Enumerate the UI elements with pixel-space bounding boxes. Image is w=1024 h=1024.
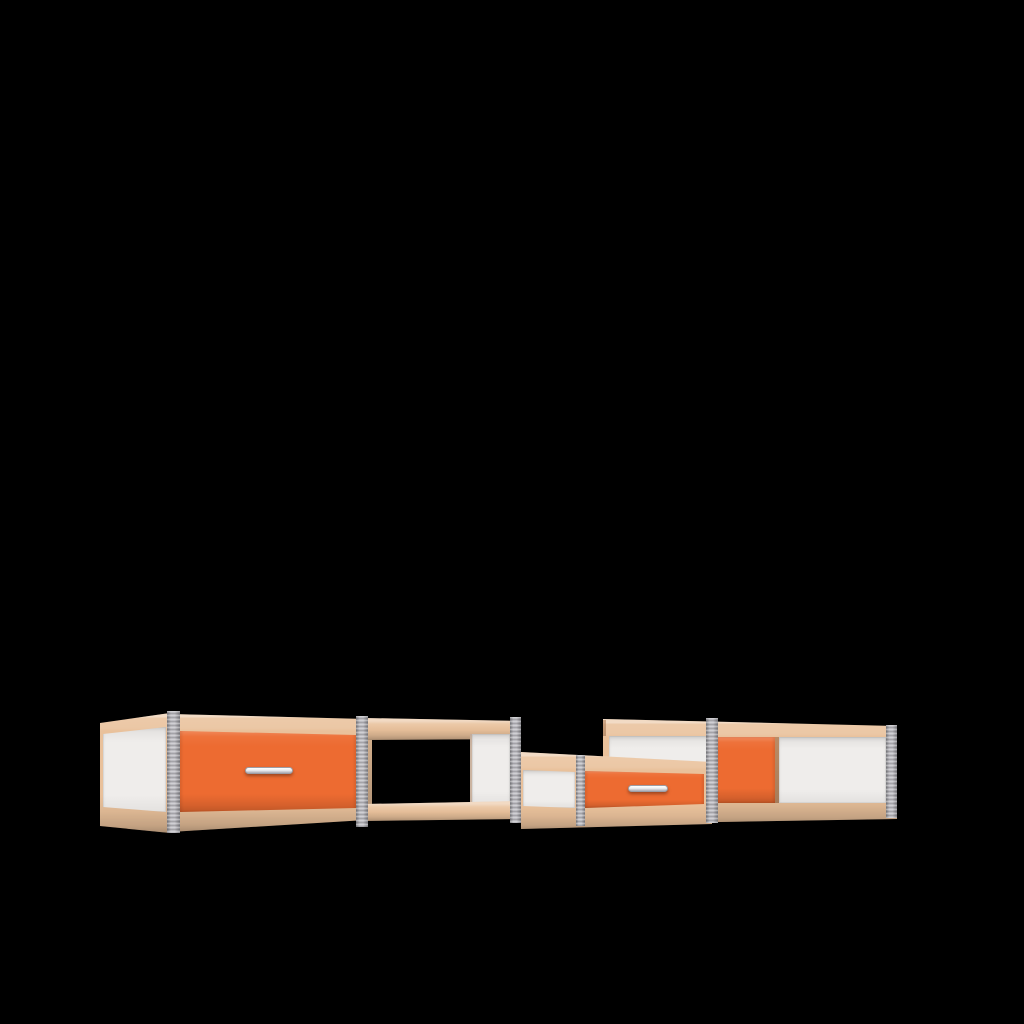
- left-module-side-panel: [103, 727, 166, 812]
- low-module-drawer-handle: [628, 785, 668, 792]
- right-cabinet-door-orange: [716, 737, 775, 803]
- open-shelf-partition-panel: [470, 734, 510, 806]
- left-module-right-post: [356, 716, 368, 827]
- left-module-drawer-handle: [245, 767, 293, 774]
- right-cabinet-door-divider: [775, 737, 779, 803]
- open-shelf-bottom-rail: [365, 801, 521, 821]
- right-cabinet-left-edge: [603, 720, 606, 736]
- low-module-white-section: [523, 770, 575, 808]
- right-cabinet-end-post: [886, 725, 897, 818]
- right-cabinet-door-white-right: [779, 737, 886, 803]
- left-module-left-post: [167, 711, 180, 833]
- low-module-middle-post: [576, 755, 585, 826]
- open-shelf-right-post: [510, 717, 521, 823]
- low-module-right-post: [706, 718, 718, 823]
- render-canvas: [0, 0, 1024, 1024]
